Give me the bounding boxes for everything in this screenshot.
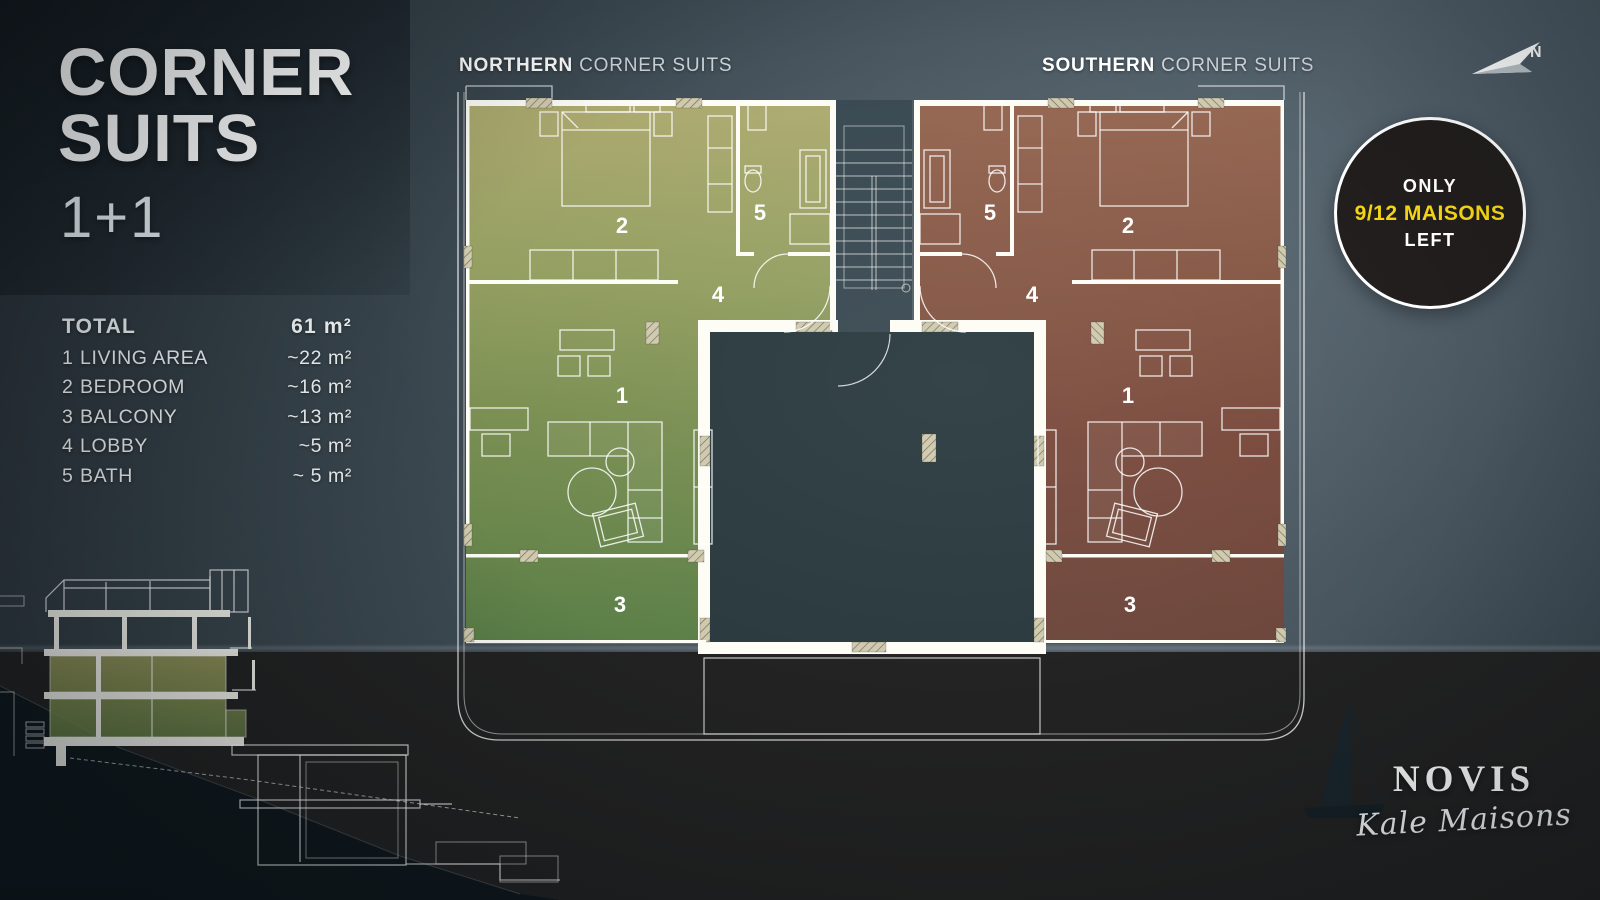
legend-label: BALCONY [80, 406, 177, 428]
brand-logo: NOVIS Kale Maisons [1344, 758, 1584, 838]
north-bedroom-number: 2 [616, 213, 628, 238]
compass-north-label: N [1530, 44, 1542, 62]
southern-wing-label-rest: CORNER SUITS [1155, 55, 1314, 76]
legend-value: ~13 m² [287, 403, 352, 433]
southern-wing-label: SOUTHERN CORNER SUITS [1042, 55, 1314, 77]
northern-wing-label: NORTHERN CORNER SUITS [459, 55, 732, 77]
legend-label: LOBBY [80, 435, 148, 457]
legend-label: LIVING AREA [80, 347, 208, 369]
north-living-number: 1 [616, 383, 628, 408]
badge-line2: 9/12 MAISONS [1355, 200, 1506, 227]
legend-value: ~16 m² [287, 373, 352, 403]
legend-total-label: TOTAL [62, 312, 136, 342]
legend-label: BATH [80, 465, 133, 487]
title-line1: CORNER [58, 40, 354, 106]
north-balcony-number: 3 [614, 592, 626, 617]
central-core [698, 320, 1046, 734]
legend-value: ~ 5 m² [293, 462, 352, 492]
availability-badge: ONLY 9/12 MAISONS LEFT [1334, 117, 1526, 309]
north-lobby-number: 4 [712, 282, 725, 307]
southern-wing-label-bold: SOUTHERN [1042, 55, 1155, 76]
south-lobby-number: 4 [1026, 282, 1039, 307]
legend-total-row: TOTAL 61 m² [62, 312, 352, 342]
badge-line1: ONLY [1403, 173, 1457, 200]
legend-total-value: 61 m² [291, 312, 352, 342]
legend-num: 1 [62, 344, 80, 374]
legend-num: 4 [62, 432, 80, 462]
title-line2: SUITS [58, 106, 354, 172]
legend-row-bath: 5BATH ~ 5 m² [62, 462, 352, 492]
legend-value: ~22 m² [287, 344, 352, 374]
south-living-number: 1 [1122, 383, 1134, 408]
area-legend: TOTAL 61 m² 1LIVING AREA ~22 m² 2BEDROOM… [62, 312, 352, 491]
legend-num: 3 [62, 403, 80, 433]
lower-terrace-outline [704, 658, 1040, 734]
south-bedroom-number: 2 [1122, 213, 1134, 238]
badge-line3: LEFT [1405, 227, 1456, 254]
south-balcony-number: 3 [1124, 592, 1136, 617]
legend-row-lobby: 4LOBBY ~5 m² [62, 432, 352, 462]
legend-value: ~5 m² [299, 432, 352, 462]
legend-num: 5 [62, 462, 80, 492]
stairwell [836, 100, 912, 326]
brand-name: NOVIS [1344, 758, 1584, 801]
south-bath-number: 5 [984, 200, 996, 225]
legend-num: 2 [62, 373, 80, 403]
northern-wing-label-bold: NORTHERN [459, 55, 573, 76]
brand-script: Kale Maisons [1343, 797, 1585, 845]
northern-wing-label-rest: CORNER SUITS [573, 55, 732, 76]
legend-row-balcony: 3BALCONY ~13 m² [62, 403, 352, 433]
poster: 2 5 4 1 3 5 2 4 1 3 [0, 0, 1600, 900]
north-bath-number: 5 [754, 200, 766, 225]
legend-row-bedroom: 2BEDROOM ~16 m² [62, 373, 352, 403]
title-subtitle: 1+1 [60, 184, 164, 251]
page-title: CORNER SUITS [58, 40, 354, 171]
legend-label: BEDROOM [80, 376, 185, 398]
legend-row-living: 1LIVING AREA ~22 m² [62, 344, 352, 374]
